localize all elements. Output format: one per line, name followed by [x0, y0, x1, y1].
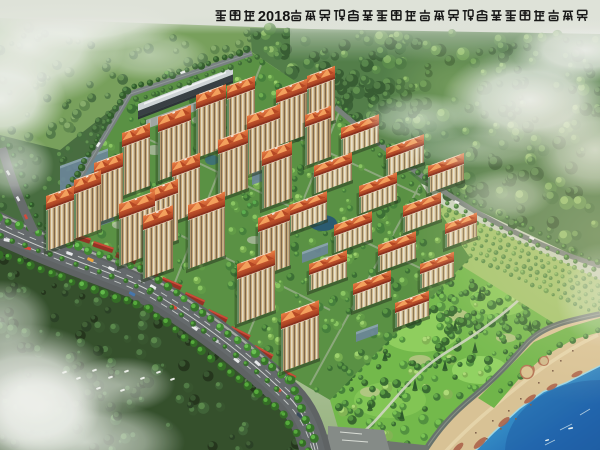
- svg-text:2018: 2018: [258, 9, 290, 25]
